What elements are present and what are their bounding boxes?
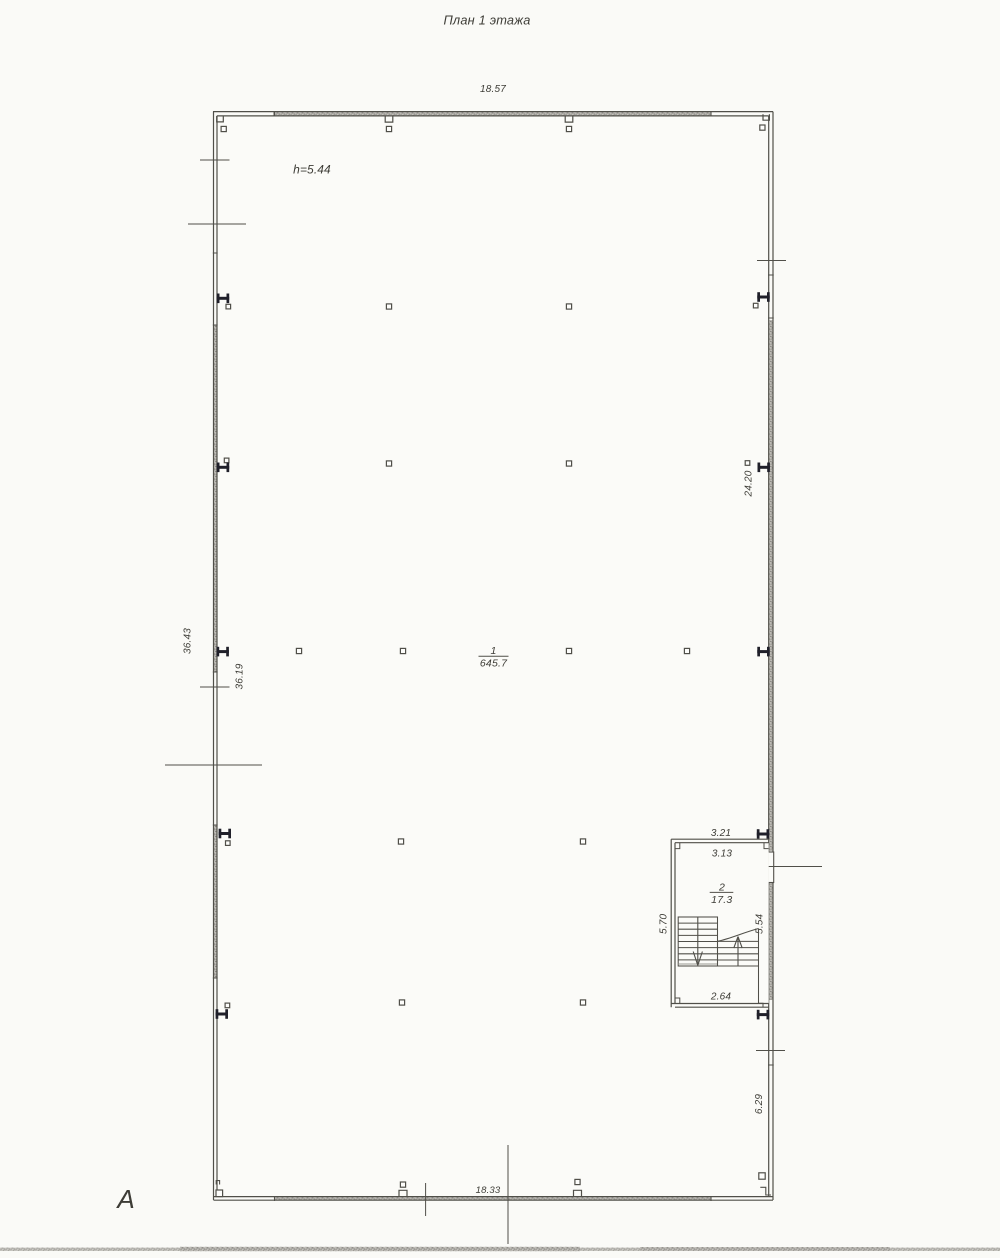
svg-text:План 1 этажа: План 1 этажа (443, 13, 530, 28)
svg-text:36.19: 36.19 (235, 663, 246, 689)
svg-text:24.20: 24.20 (744, 470, 755, 497)
svg-text:5.54: 5.54 (754, 913, 765, 934)
svg-text:3.13: 3.13 (712, 849, 733, 860)
svg-text:1: 1 (490, 645, 496, 657)
svg-text:17.3: 17.3 (711, 894, 732, 906)
svg-text:h=5.44: h=5.44 (293, 163, 331, 177)
svg-text:5.70: 5.70 (659, 913, 670, 934)
svg-text:3.21: 3.21 (711, 828, 731, 839)
svg-text:18.33: 18.33 (476, 1185, 501, 1196)
svg-text:2.64: 2.64 (710, 992, 732, 1003)
svg-text:2: 2 (718, 881, 725, 893)
svg-text:6.29: 6.29 (754, 1094, 765, 1115)
svg-text:A: A (115, 1184, 134, 1214)
svg-text:645.7: 645.7 (480, 658, 508, 670)
svg-text:18.57: 18.57 (480, 84, 506, 95)
svg-text:36.43: 36.43 (183, 628, 194, 654)
